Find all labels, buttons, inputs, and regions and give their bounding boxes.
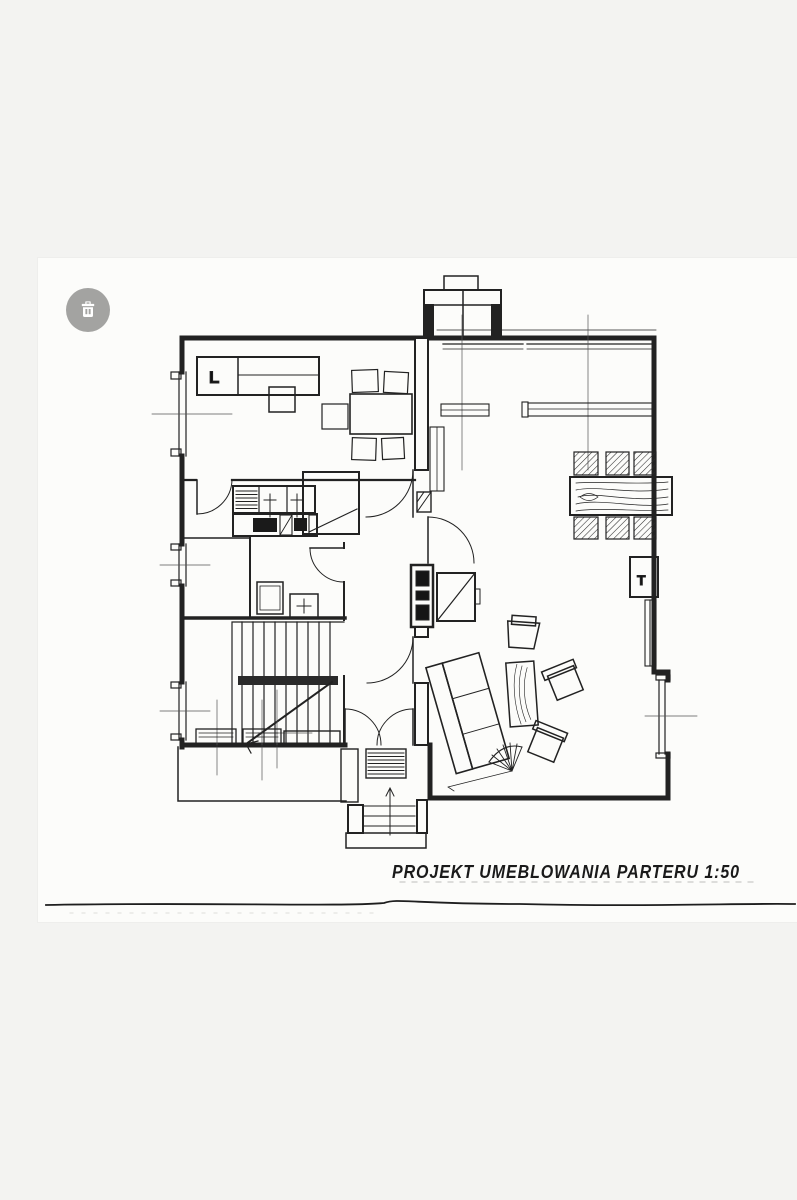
plan-title: PROJEKT UMEBLOWANIA PARTERU 1:50 [392, 862, 740, 882]
dining-table-small [322, 370, 412, 461]
right-window [645, 675, 697, 758]
armchair-1 [542, 659, 586, 701]
floor-plan-image: T [0, 0, 797, 1200]
side-chair [506, 615, 540, 649]
coffee-table [506, 661, 538, 727]
cabinet-with-diagonal [437, 573, 480, 621]
plant [448, 743, 522, 791]
trash-icon [76, 298, 100, 322]
entry-doors [345, 709, 413, 745]
kitchen-lower-cabinets [233, 514, 317, 536]
radiators-top [441, 402, 652, 417]
left-windows [152, 372, 232, 740]
delete-button[interactable] [66, 288, 110, 332]
sofa [426, 653, 509, 774]
divider-wall [366, 338, 474, 745]
armchair-2 [524, 721, 568, 763]
scan-edge-line [46, 901, 795, 905]
scan-marks [46, 882, 795, 913]
tv-label: T [637, 572, 646, 588]
doormat [366, 749, 406, 778]
scanned-floor-plan-page: T [0, 0, 797, 1200]
staircase [217, 622, 344, 780]
dining-table-large [570, 452, 672, 539]
fridge-unit [303, 472, 359, 534]
bathroom-fixtures [257, 582, 318, 618]
bed-label: L [209, 368, 219, 387]
nightstand [269, 387, 295, 412]
chimney [424, 276, 501, 338]
